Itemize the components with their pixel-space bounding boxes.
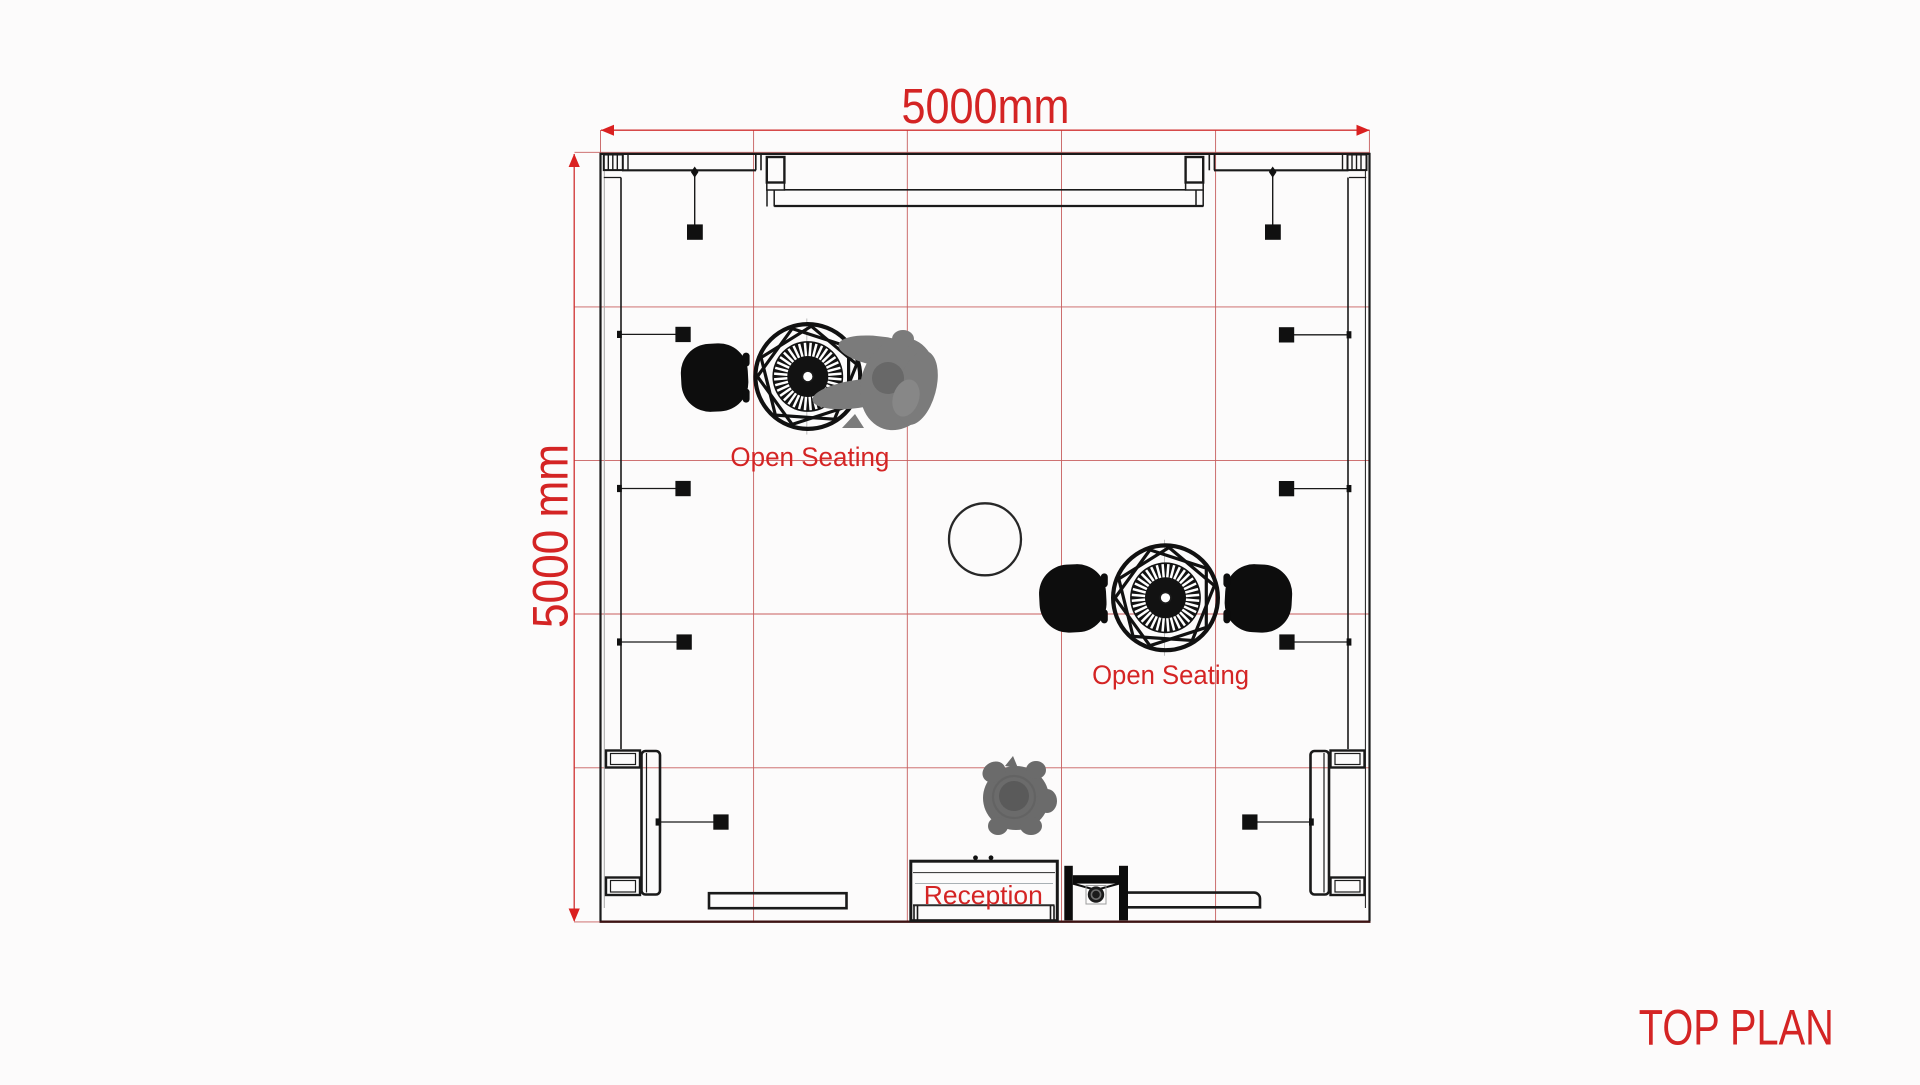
svg-text:5000 mm: 5000 mm (523, 444, 579, 628)
svg-text:Open Seating: Open Seating (730, 442, 889, 472)
svg-text:Reception: Reception (924, 880, 1043, 910)
svg-text:Open Seating: Open Seating (1092, 660, 1249, 690)
svg-text:5000mm: 5000mm (902, 80, 1070, 134)
svg-text:TOP PLAN: TOP PLAN (1639, 1000, 1834, 1056)
